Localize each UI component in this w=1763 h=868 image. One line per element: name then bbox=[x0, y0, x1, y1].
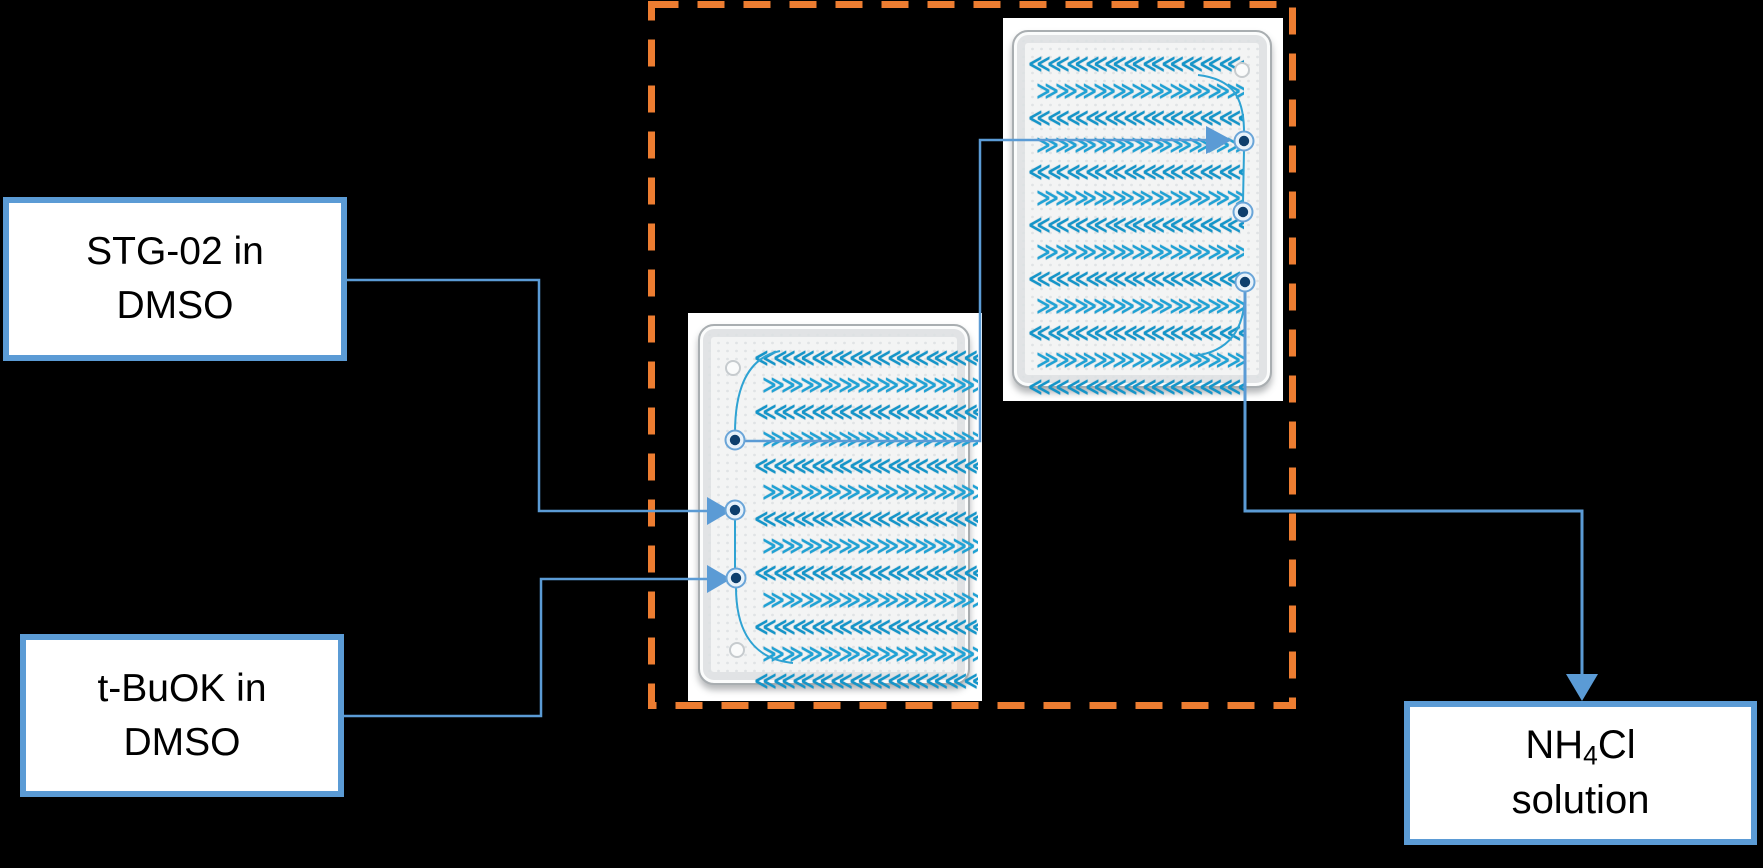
chip-row: ≫≫≫≫≫≫≫≫≫≫≫≫≫≫≫≫ bbox=[1036, 79, 1244, 106]
chip-row: ≫≫≫≫≫≫≫≫≫≫≫≫≫≫≫≫ bbox=[1036, 186, 1244, 213]
chip-row: ≪≪≪≪≪≪≪≪≪≪≪≪≪≪≪≪ bbox=[1028, 213, 1244, 240]
chip-row: ≪≪≪≪≪≪≪≪≪≪≪≪≪≪≪≪ bbox=[1028, 106, 1244, 133]
chip-row: ≫≫≫≫≫≫≫≫≫≫≫≫≫≫≫≫ bbox=[762, 642, 978, 669]
nh4cl-formula-subscript: 4 bbox=[1583, 737, 1598, 773]
chip-row: ≪≪≪≪≪≪≪≪≪≪≪≪≪≪≪≪ bbox=[754, 400, 978, 427]
connector-line-chip2-to-outlet bbox=[1245, 284, 1582, 674]
label-box-tbuok: t-BuOK in DMSO bbox=[20, 634, 344, 797]
chip-row: ≪≪≪≪≪≪≪≪≪≪≪≪≪≪≪≪ bbox=[754, 507, 978, 534]
chip-row: ≪≪≪≪≪≪≪≪≪≪≪≪≪≪≪≪ bbox=[754, 669, 978, 696]
microreactor-photo-2: ≪≪≪≪≪≪≪≪≪≪≪≪≪≪≪≪≫≫≫≫≫≫≫≫≫≫≫≫≫≫≫≫≪≪≪≪≪≪≪≪… bbox=[1003, 18, 1283, 401]
label-box-stg02: STG-02 in DMSO bbox=[3, 197, 347, 361]
chip-channel-pattern: ≪≪≪≪≪≪≪≪≪≪≪≪≪≪≪≪≫≫≫≫≫≫≫≫≫≫≫≫≫≫≫≫≪≪≪≪≪≪≪≪… bbox=[754, 346, 978, 696]
tbuok-line1: t-BuOK in bbox=[97, 662, 266, 716]
chip-row: ≫≫≫≫≫≫≫≫≫≫≫≫≫≫≫≫ bbox=[762, 373, 978, 400]
chip-row: ≪≪≪≪≪≪≪≪≪≪≪≪≪≪≪≪ bbox=[754, 346, 978, 373]
chip-row: ≪≪≪≪≪≪≪≪≪≪≪≪≪≪≪≪ bbox=[1028, 267, 1244, 294]
chip-row: ≪≪≪≪≪≪≪≪≪≪≪≪≪≪≪≪ bbox=[754, 615, 978, 642]
chip-row: ≪≪≪≪≪≪≪≪≪≪≪≪≪≪≪≪ bbox=[754, 454, 978, 481]
nh4cl-formula-pre: NH bbox=[1525, 723, 1583, 767]
chip-row: ≫≫≫≫≫≫≫≫≫≫≫≫≫≫≫≫ bbox=[1036, 294, 1244, 321]
arrowhead-icon bbox=[1566, 674, 1598, 701]
chip-row: ≫≫≫≫≫≫≫≫≫≫≫≫≫≫≫≫ bbox=[762, 480, 978, 507]
chip-channel-pattern: ≪≪≪≪≪≪≪≪≪≪≪≪≪≪≪≪≫≫≫≫≫≫≫≫≫≫≫≫≫≫≫≫≪≪≪≪≪≪≪≪… bbox=[1028, 52, 1244, 403]
chip-row: ≪≪≪≪≪≪≪≪≪≪≪≪≪≪≪≪ bbox=[1028, 375, 1244, 402]
chip-row: ≪≪≪≪≪≪≪≪≪≪≪≪≪≪≪≪ bbox=[754, 561, 978, 588]
nh4cl-formula-post: Cl bbox=[1598, 723, 1636, 767]
microreactor-plate-2: ≪≪≪≪≪≪≪≪≪≪≪≪≪≪≪≪≫≫≫≫≫≫≫≫≫≫≫≫≫≫≫≫≪≪≪≪≪≪≪≪… bbox=[1012, 30, 1272, 388]
connector-line-stg02 bbox=[347, 280, 707, 511]
tbuok-line2: DMSO bbox=[124, 716, 241, 770]
microreactor-plate-1: ≪≪≪≪≪≪≪≪≪≪≪≪≪≪≪≪≫≫≫≫≫≫≫≫≫≫≫≫≫≫≫≫≪≪≪≪≪≪≪≪… bbox=[698, 324, 970, 685]
chip-row: ≪≪≪≪≪≪≪≪≪≪≪≪≪≪≪≪ bbox=[1028, 160, 1244, 187]
nh4cl-line1: NH4Cl bbox=[1525, 718, 1635, 773]
chip-row: ≪≪≪≪≪≪≪≪≪≪≪≪≪≪≪≪ bbox=[1028, 52, 1244, 79]
microreactor-photo-1: ≪≪≪≪≪≪≪≪≪≪≪≪≪≪≪≪≫≫≫≫≫≫≫≫≫≫≫≫≫≫≫≫≪≪≪≪≪≪≪≪… bbox=[688, 313, 982, 701]
stg02-line2: DMSO bbox=[117, 279, 234, 333]
chip-row: ≫≫≫≫≫≫≫≫≫≫≫≫≫≫≫≫ bbox=[1036, 348, 1244, 375]
label-box-nh4cl: NH4Cl solution bbox=[1404, 701, 1757, 845]
nh4cl-line2: solution bbox=[1512, 773, 1650, 828]
chip-row: ≫≫≫≫≫≫≫≫≫≫≫≫≫≫≫≫ bbox=[1036, 240, 1244, 267]
chip-row: ≫≫≫≫≫≫≫≫≫≫≫≫≫≫≫≫ bbox=[762, 427, 978, 454]
chip-row: ≪≪≪≪≪≪≪≪≪≪≪≪≪≪≪≪ bbox=[1028, 321, 1244, 348]
chip-row: ≫≫≫≫≫≫≫≫≫≫≫≫≫≫≫≫ bbox=[762, 588, 978, 615]
chip-row: ≫≫≫≫≫≫≫≫≫≫≫≫≫≫≫≫ bbox=[1036, 133, 1244, 160]
diagram-canvas: ≪≪≪≪≪≪≪≪≪≪≪≪≪≪≪≪≫≫≫≫≫≫≫≫≫≫≫≫≫≫≫≫≪≪≪≪≪≪≪≪… bbox=[0, 0, 1763, 868]
connector-line-tbuok bbox=[344, 579, 707, 716]
chip-row: ≫≫≫≫≫≫≫≫≫≫≫≫≫≫≫≫ bbox=[762, 534, 978, 561]
stg02-line1: STG-02 in bbox=[86, 225, 264, 279]
